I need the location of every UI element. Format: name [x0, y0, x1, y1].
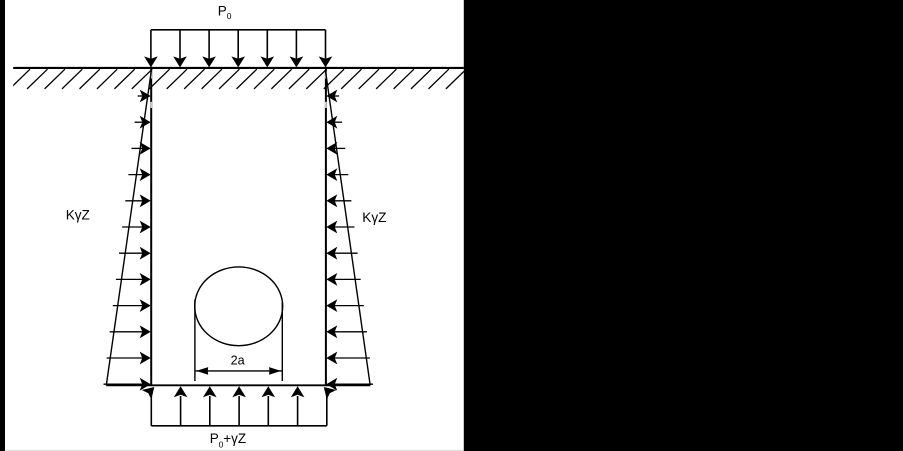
- svg-text:2a: 2a: [231, 354, 245, 368]
- svg-text:P: P: [218, 3, 227, 18]
- svg-text:KγZ: KγZ: [66, 208, 90, 223]
- svg-text:0: 0: [227, 11, 232, 21]
- svg-text:KγZ: KγZ: [362, 210, 386, 225]
- svg-text:P: P: [210, 431, 219, 446]
- svg-text:+γZ: +γZ: [223, 431, 246, 446]
